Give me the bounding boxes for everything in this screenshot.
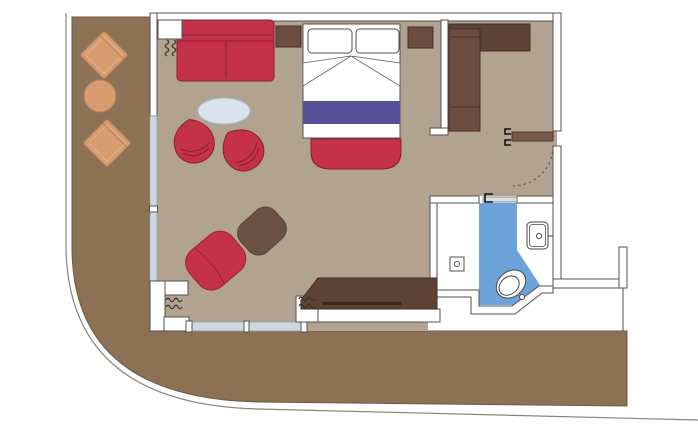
sink-drain: [537, 234, 542, 239]
floor-plan-image: [0, 0, 698, 433]
pillow-left: [308, 29, 352, 53]
floor-drain-hole: [455, 262, 460, 267]
foot-bench: [311, 139, 401, 169]
balcony-round-table: [84, 80, 116, 112]
right-wall-lower: [553, 146, 561, 286]
desk-groove: [322, 302, 401, 305]
double-bed: [303, 24, 400, 138]
wardrobe-tall-unit: [449, 29, 480, 131]
sofa: [177, 20, 274, 81]
nightstand-right: [408, 27, 433, 48]
nightstand-left: [276, 26, 301, 47]
balcony-divider-wall: [619, 247, 627, 288]
exterior-wall-horizontal: [553, 279, 627, 288]
entry-door: [512, 132, 553, 141]
closet-wall: [441, 20, 448, 132]
closet-wall-stub: [430, 128, 448, 135]
bottom-window-mullion-mid: [244, 321, 249, 332]
bottom-wall-desk-section: [309, 309, 440, 322]
corner-wall-step: [164, 317, 189, 331]
pillow-right: [356, 29, 399, 53]
coffee-table: [198, 98, 250, 124]
toilet-flush-button: [520, 295, 525, 300]
bathroom-top-wall-right: [517, 196, 557, 203]
floor-plan-svg: [0, 0, 698, 433]
bathroom-top-wall-left: [430, 196, 479, 203]
bottom-window-mullion-left: [186, 321, 192, 332]
bed-runner: [303, 101, 400, 124]
corner-wall-notch-v: [150, 281, 165, 331]
wall-feature-box: [158, 20, 182, 39]
left-window-mullion: [150, 206, 158, 212]
left-window-glass: [150, 116, 157, 282]
left-wall-upper: [150, 13, 157, 116]
desk-console: [301, 278, 437, 309]
bottom-window-mullion-right: [301, 321, 307, 332]
right-wall-upper: [553, 13, 561, 131]
